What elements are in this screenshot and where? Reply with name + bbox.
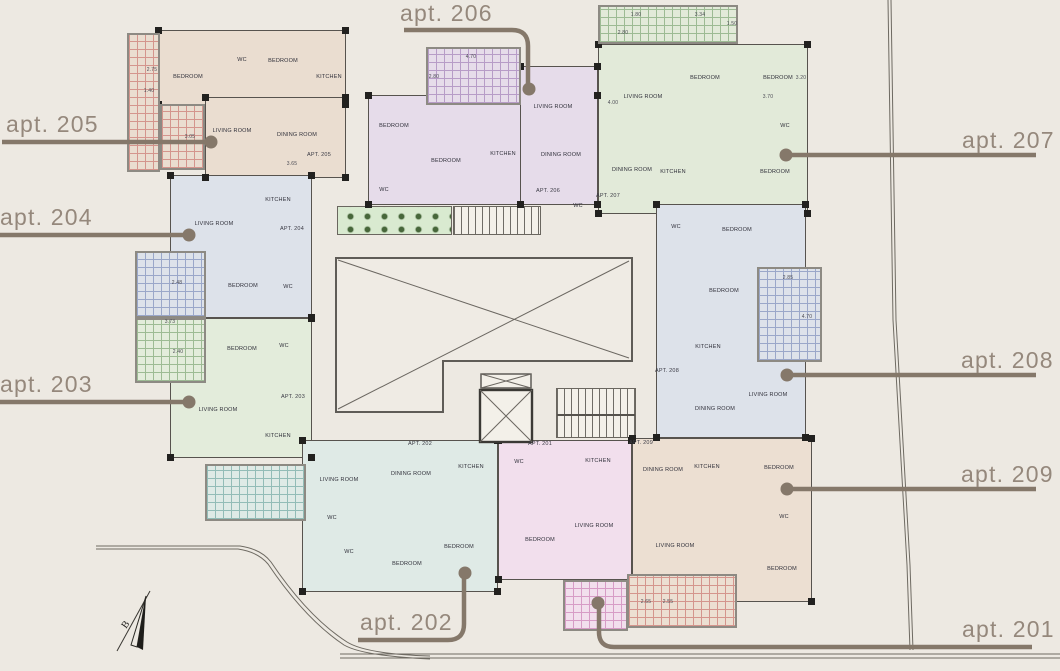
- room-label-kitchen: KITCHEN: [436, 465, 506, 471]
- apt-number-label-apt-208: APT. 208: [632, 369, 702, 375]
- room-label-dining-room: DINING ROOM: [376, 472, 446, 478]
- compass-letter: B: [119, 619, 132, 631]
- dimension-label: 1.80: [616, 13, 656, 18]
- wall-column: [653, 434, 660, 441]
- room-label-wc: WC: [543, 204, 613, 210]
- wall-column: [299, 588, 306, 595]
- room-label-bedroom: BEDROOM: [740, 170, 810, 176]
- room-label-living-room: LIVING ROOM: [518, 105, 588, 111]
- dimension-label: 3.20: [781, 76, 821, 81]
- floor-plan-canvas: B apt. 205 apt. 204 apt. 203 apt. 206 ap…: [0, 0, 1060, 671]
- room-label-kitchen: KITCHEN: [563, 459, 633, 465]
- wall-column: [308, 172, 315, 179]
- dimension-label: 3.73: [150, 320, 190, 325]
- dimension-label: 2.80: [414, 75, 454, 80]
- dimension-label: 2.40: [158, 350, 198, 355]
- callout-apt-207: apt. 207: [962, 127, 1055, 154]
- room-label-kitchen: KITCHEN: [243, 198, 313, 204]
- callout-apt-202: apt. 202: [360, 609, 453, 636]
- room-label-living-room: LIVING ROOM: [640, 544, 710, 550]
- planter-garden: [337, 206, 452, 235]
- room-label-bedroom: BEDROOM: [702, 228, 772, 234]
- dimension-label: 4.00: [593, 101, 633, 106]
- wall-column: [342, 101, 349, 108]
- wall-column: [802, 201, 809, 208]
- room-label-bedroom: BEDROOM: [153, 75, 223, 81]
- apt-number-label-apt-202: APT. 202: [385, 442, 455, 448]
- dimension-label: 4.70: [451, 55, 491, 60]
- staircase-top: [453, 206, 541, 235]
- room-label-bedroom: BEDROOM: [689, 289, 759, 295]
- apt-number-label-apt-204: APT. 204: [257, 227, 327, 233]
- wall-column: [495, 576, 502, 583]
- callout-apt-206: apt. 206: [400, 0, 493, 27]
- room-label-kitchen: KITCHEN: [294, 75, 364, 81]
- callout-apt-208: apt. 208: [961, 347, 1054, 374]
- room-label-bedroom: BEDROOM: [744, 466, 814, 472]
- wall-column: [517, 201, 524, 208]
- room-label-wc: WC: [314, 550, 384, 556]
- room-label-living-room: LIVING ROOM: [183, 408, 253, 414]
- room-label-wc: WC: [249, 344, 319, 350]
- callout-apt-209: apt. 209: [961, 461, 1054, 488]
- callout-apt-203: apt. 203: [0, 371, 93, 398]
- wall-column: [804, 41, 811, 48]
- wall-column: [202, 174, 209, 181]
- room-label-wc: WC: [297, 516, 367, 522]
- room-label-bedroom: BEDROOM: [505, 538, 575, 544]
- wall-column: [594, 63, 601, 70]
- wall-column: [495, 437, 502, 444]
- callout-apt-201: apt. 201: [962, 616, 1055, 643]
- dimension-label: 2.85: [768, 276, 808, 281]
- dimension-label: 3.34: [680, 13, 720, 18]
- room-label-bedroom: BEDROOM: [424, 545, 494, 551]
- room-label-bedroom: BEDROOM: [747, 567, 817, 573]
- wall-column: [365, 201, 372, 208]
- wall-column: [594, 92, 601, 99]
- wall-column: [808, 598, 815, 605]
- room-label-bedroom: BEDROOM: [670, 76, 740, 82]
- room-label-kitchen: KITCHEN: [638, 170, 708, 176]
- room-label-kitchen: KITCHEN: [672, 465, 742, 471]
- wall-column: [365, 92, 372, 99]
- callout-apt-204: apt. 204: [0, 204, 93, 231]
- balcony-apt-201: [563, 580, 628, 631]
- wall-column: [342, 27, 349, 34]
- dimension-label: 1.50: [712, 22, 752, 27]
- wall-column: [308, 454, 315, 461]
- dimension-label: 3.70: [748, 95, 788, 100]
- unit-apt-205: [158, 30, 346, 105]
- room-label-dining-room: DINING ROOM: [680, 407, 750, 413]
- room-label-dining-room: DINING ROOM: [262, 133, 332, 139]
- dimension-label: 2.75: [132, 68, 172, 73]
- dimension-label: 2.48: [157, 281, 197, 286]
- dimension-label: 2.80: [603, 31, 643, 36]
- apt-number-label-apt-207: APT. 207: [573, 194, 643, 200]
- apt-number-label-apt-209: APT. 209: [606, 441, 676, 447]
- dimension-label: 3.05: [170, 135, 210, 140]
- wall-column: [342, 174, 349, 181]
- apt-number-label-apt-201: APT. 201: [505, 442, 575, 448]
- wall-column: [804, 210, 811, 217]
- room-label-bedroom: BEDROOM: [359, 124, 429, 130]
- wall-column: [308, 315, 315, 322]
- wall-column: [808, 435, 815, 442]
- balcony-apt-205: [127, 33, 160, 172]
- callout-apt-205: apt. 205: [6, 111, 99, 138]
- room-label-living-room: LIVING ROOM: [304, 478, 374, 484]
- room-label-wc: WC: [253, 285, 323, 291]
- wall-column: [342, 94, 349, 101]
- room-label-living-room: LIVING ROOM: [733, 393, 803, 399]
- wall-column: [167, 172, 174, 179]
- dimension-label: 1.40: [129, 89, 169, 94]
- room-label-living-room: LIVING ROOM: [179, 222, 249, 228]
- wall-column: [653, 201, 660, 208]
- room-label-wc: WC: [750, 124, 820, 130]
- room-label-wc: WC: [349, 188, 419, 194]
- apt-number-label-apt-205: APT. 205: [284, 153, 354, 159]
- apt-number-label-apt-203: APT. 203: [258, 395, 328, 401]
- room-label-bedroom: BEDROOM: [372, 562, 442, 568]
- wall-column: [494, 588, 501, 595]
- wall-column: [167, 454, 174, 461]
- room-label-living-room: LIVING ROOM: [559, 524, 629, 530]
- dimension-label: 3.65: [272, 162, 312, 167]
- room-label-dining-room: DINING ROOM: [526, 153, 596, 159]
- room-label-kitchen: KITCHEN: [673, 345, 743, 351]
- room-label-wc: WC: [641, 225, 711, 231]
- dimension-label: 4.70: [787, 315, 827, 320]
- wall-column: [202, 94, 209, 101]
- elevator-shaft: [480, 374, 532, 442]
- dimension-label: 2.55: [648, 600, 688, 605]
- wall-column: [595, 210, 602, 217]
- staircase-bottom: [556, 388, 636, 438]
- balcony-apt-202: [205, 464, 306, 521]
- room-label-bedroom: BEDROOM: [248, 59, 318, 65]
- room-label-wc: WC: [749, 515, 819, 521]
- room-label-wc: WC: [484, 460, 554, 466]
- unit-apt-206: [520, 66, 598, 205]
- room-label-kitchen: KITCHEN: [243, 434, 313, 440]
- room-label-bedroom: BEDROOM: [411, 159, 481, 165]
- north-arrow-compass: B: [117, 591, 150, 651]
